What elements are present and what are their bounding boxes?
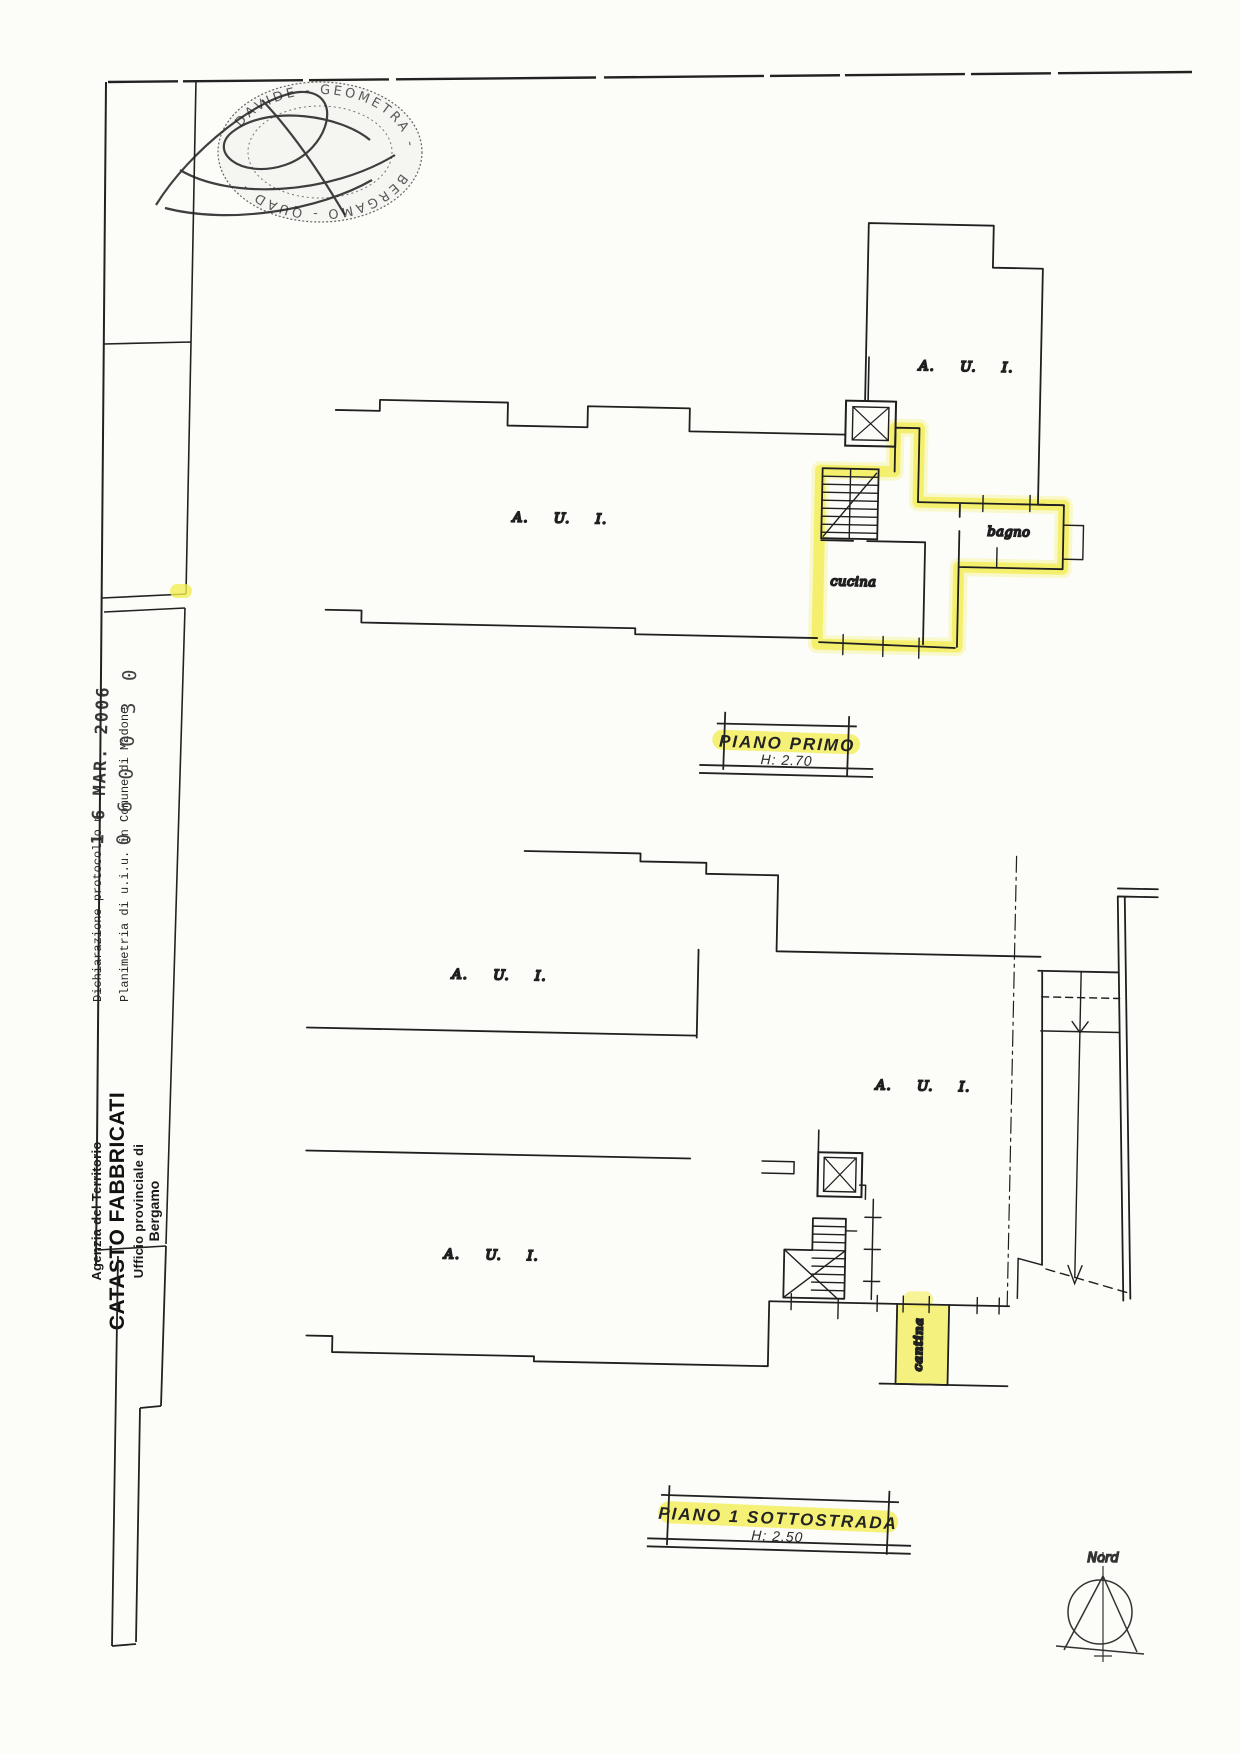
lower-left-wall1 [307, 941, 699, 1037]
aui-label-upper-left: A. U. I. [510, 510, 607, 528]
bagno-label: bagno [987, 525, 1030, 541]
ramp-bottom-step [1017, 1258, 1042, 1298]
boundary-dashdot-line [1007, 856, 1016, 1306]
strip-box-c [112, 1246, 166, 1646]
ramp-right-wall [1109, 888, 1158, 1301]
aui-label-lower-2: A. U. I. [874, 1077, 971, 1095]
lower-left-wall2 [306, 1150, 690, 1158]
bottom-band-walls [768, 1301, 1010, 1386]
caption-piano-primo: PIANO PRIMO H: 2.70 [699, 711, 875, 779]
caption-piano-sottostrada: PIANO 1 SOTTOSTRADA H: 2.50 [647, 1480, 914, 1557]
upper-left-room-top [335, 399, 845, 435]
elevator-lobby-stub [762, 1161, 794, 1174]
strip-left-line [96, 82, 106, 1266]
compass-triangle [1056, 1576, 1144, 1654]
document-drawing: DAVIDE - GEOMETRA - BERGAMO - QUAD - [0, 0, 1240, 1754]
floor-plans-layer: A. U. I. A. U. I. cucina bagno [300, 212, 1172, 1390]
strip-right-line-top [191, 80, 196, 342]
strip-box-b [98, 608, 185, 1250]
nord-label: Nord [1087, 1551, 1119, 1566]
strip-box-a [102, 342, 191, 598]
piano-primo-plan: A. U. I. A. U. I. cucina bagno [325, 212, 1090, 662]
caption1-height: H: 2.70 [760, 751, 813, 769]
lower-bottom-edge [306, 1292, 769, 1367]
staircase-icon-lower [783, 1218, 857, 1319]
top-rule [108, 72, 1192, 82]
upper-left-room-bottom [325, 610, 817, 638]
cucina-label: cucina [830, 574, 877, 590]
aui-label-lower-3: A. U. I. [442, 1246, 539, 1264]
caption2-height: H: 2.50 [751, 1527, 804, 1545]
compass-circle [1068, 1580, 1132, 1644]
garage-ramp [1007, 856, 1158, 1309]
scanned-cadastral-document: Agenzia del Territorio CATASTO FABBRICAT… [0, 0, 1240, 1754]
aui-label-upper-right: A. U. I. [917, 358, 1014, 376]
lower-corridor-wall [857, 1185, 881, 1299]
highlighter-dab [170, 584, 192, 598]
cucina-walls [819, 540, 925, 644]
ramp-left-wall [1032, 971, 1118, 1267]
ramp-bottom-dashed [1045, 1269, 1127, 1293]
lower-top-walls [523, 851, 1043, 957]
elevator-icon-lower [817, 1130, 862, 1197]
form-strip [96, 72, 1192, 1646]
cantina-label: cantina [911, 1317, 926, 1371]
piano-sottostrada-plan: A. U. I. A. U. I. A. U. I. cantina [300, 842, 1159, 1390]
north-compass: Nord [1056, 1551, 1144, 1662]
ramp-center-arrow [1068, 972, 1089, 1284]
aui-label-lower-1: A. U. I. [450, 966, 547, 984]
